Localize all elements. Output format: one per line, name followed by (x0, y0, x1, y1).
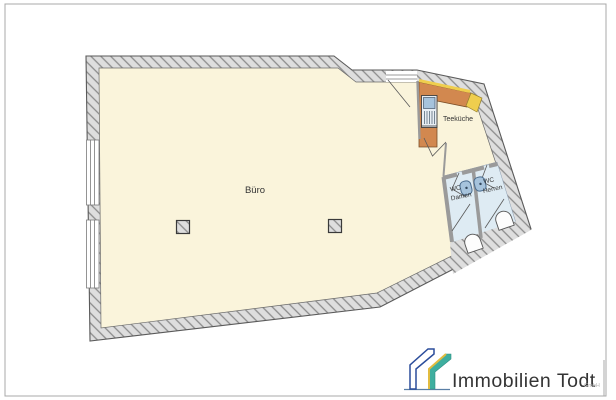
window-top (386, 71, 417, 82)
office-label: Büro (245, 185, 265, 196)
kitchen-label: Teeküche (443, 116, 473, 123)
window-left-upper (87, 140, 100, 205)
company-logo: Immobilien Todt GmbH (404, 349, 604, 396)
kitchen-unit-icon (422, 96, 438, 128)
window-left-lower (87, 220, 100, 288)
logo-company-suffix: GmbH (584, 383, 600, 389)
floor-plan: Büro Teeküche WC Damen WC Herren (86, 56, 531, 341)
floorplan-canvas: Büro Teeküche WC Damen WC Herren Immobil… (0, 0, 616, 400)
column-left (177, 221, 190, 234)
logo-company-name: Immobilien Todt (452, 370, 596, 392)
column-right (329, 220, 342, 233)
